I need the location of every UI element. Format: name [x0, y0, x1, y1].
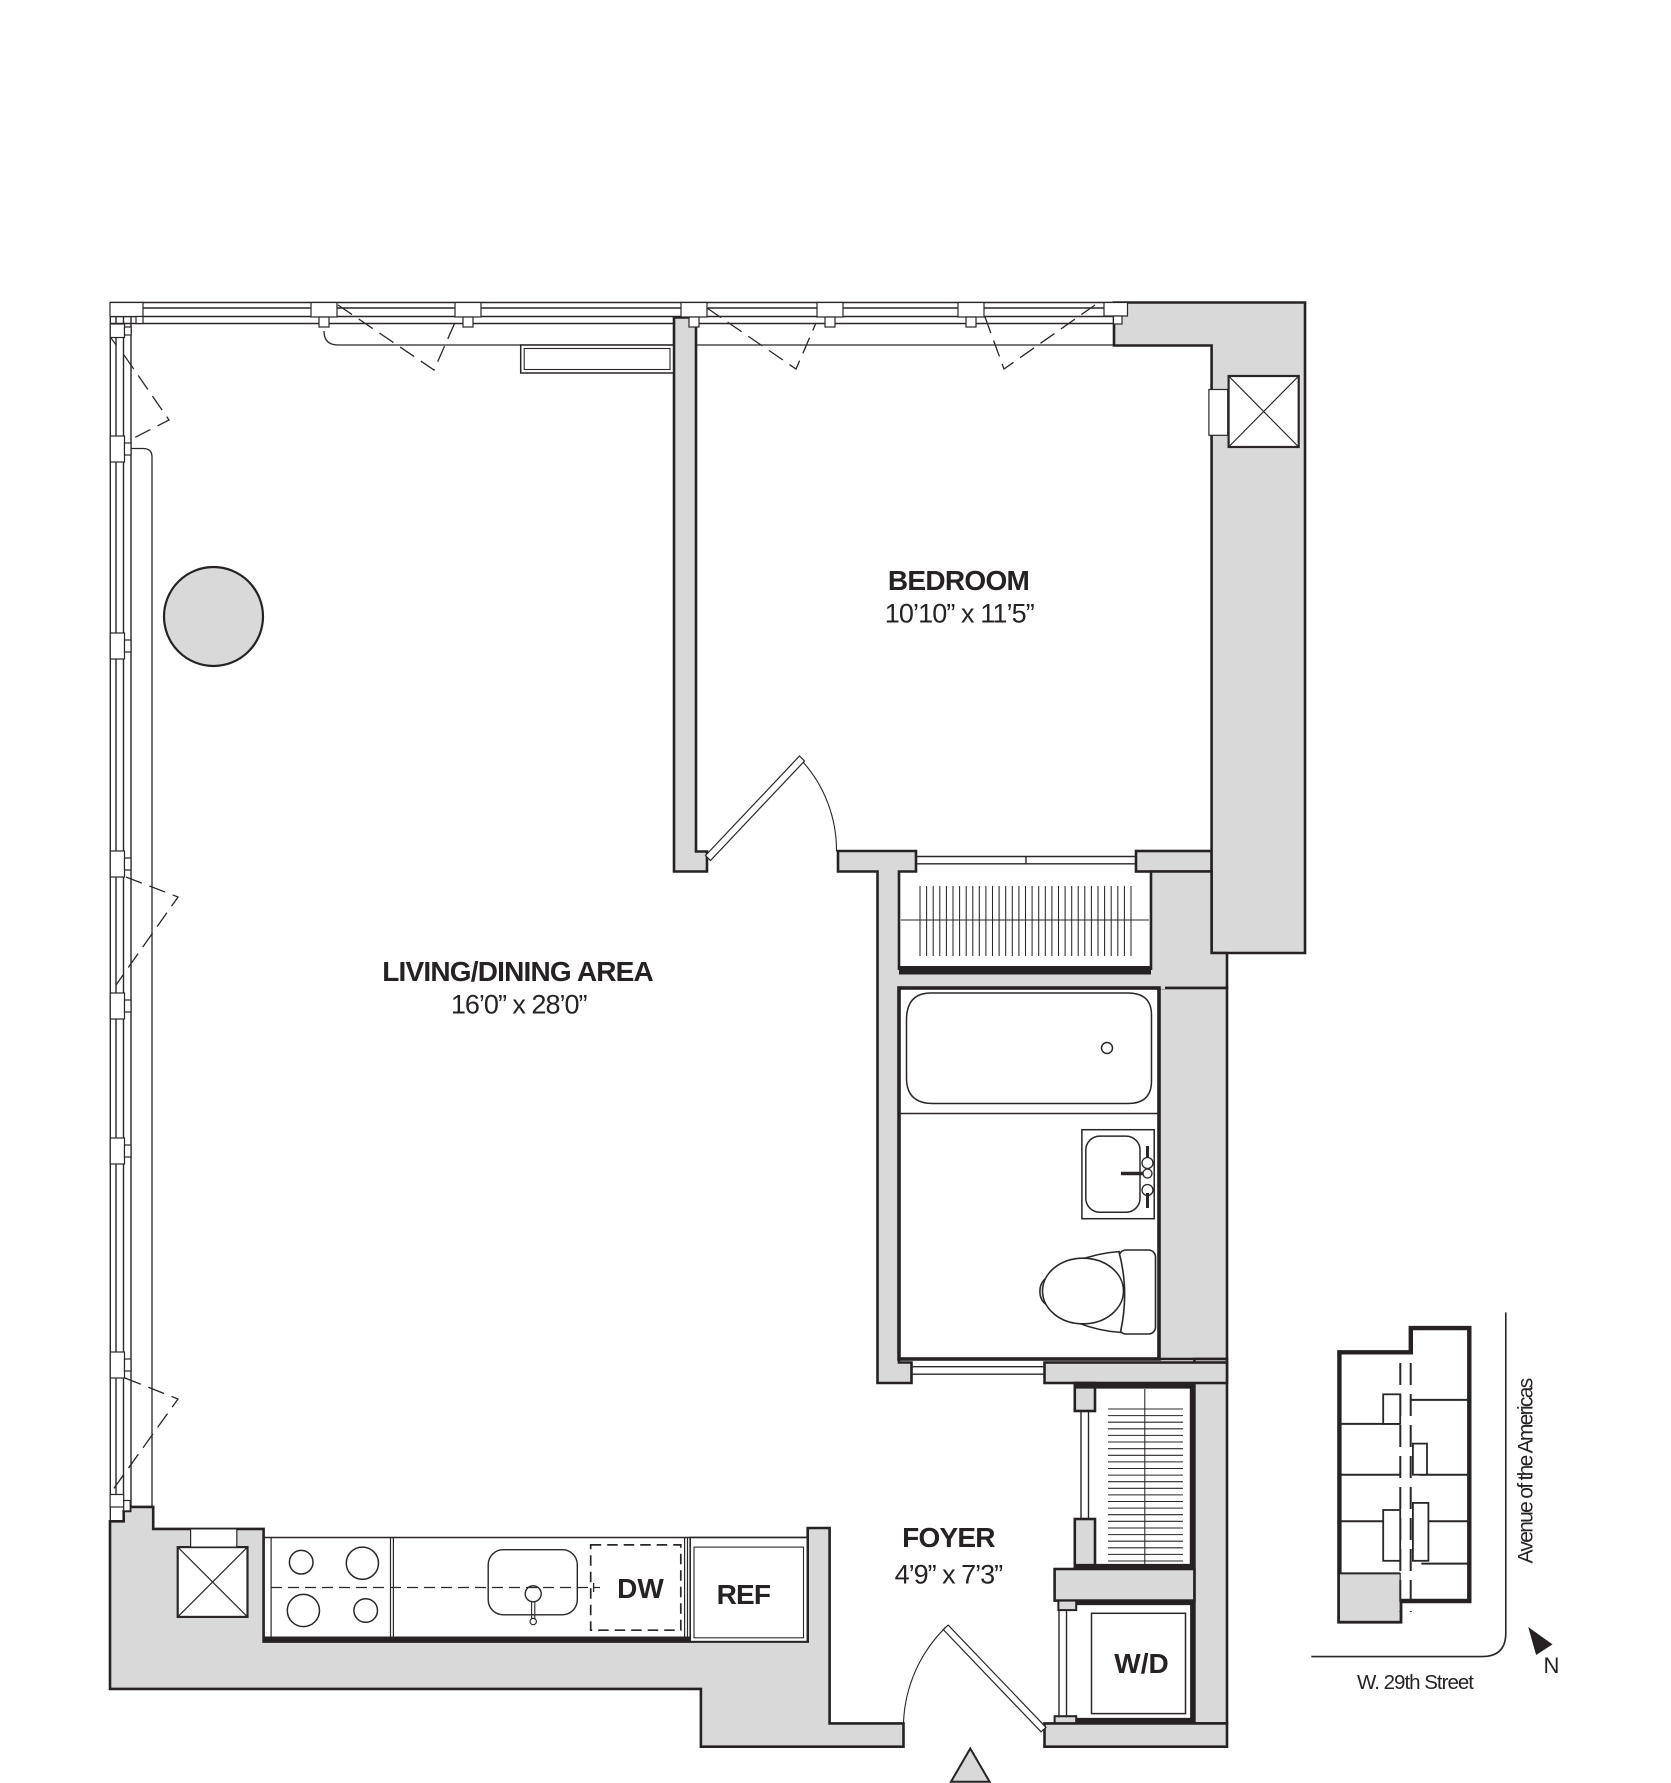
svg-text:10’10” x 11’5”: 10’10” x 11’5”: [885, 599, 1034, 629]
svg-text:N: N: [1544, 1653, 1560, 1678]
svg-text:W. 29th Street: W. 29th Street: [1357, 1671, 1474, 1694]
svg-text:LIVING/DINING AREA: LIVING/DINING AREA: [382, 956, 653, 987]
svg-text:DW: DW: [617, 1573, 664, 1604]
svg-text:FOYER: FOYER: [902, 1522, 995, 1553]
svg-text:W/D: W/D: [1114, 1648, 1168, 1679]
svg-text:BEDROOM: BEDROOM: [888, 565, 1029, 596]
svg-text:16’0” x 28’0”: 16’0” x 28’0”: [451, 990, 587, 1020]
svg-text:4’9” x 7’3”: 4’9” x 7’3”: [895, 1559, 1003, 1589]
svg-text:Avenue of the Americas: Avenue of the Americas: [1515, 1378, 1538, 1563]
svg-text:REF: REF: [717, 1579, 771, 1610]
